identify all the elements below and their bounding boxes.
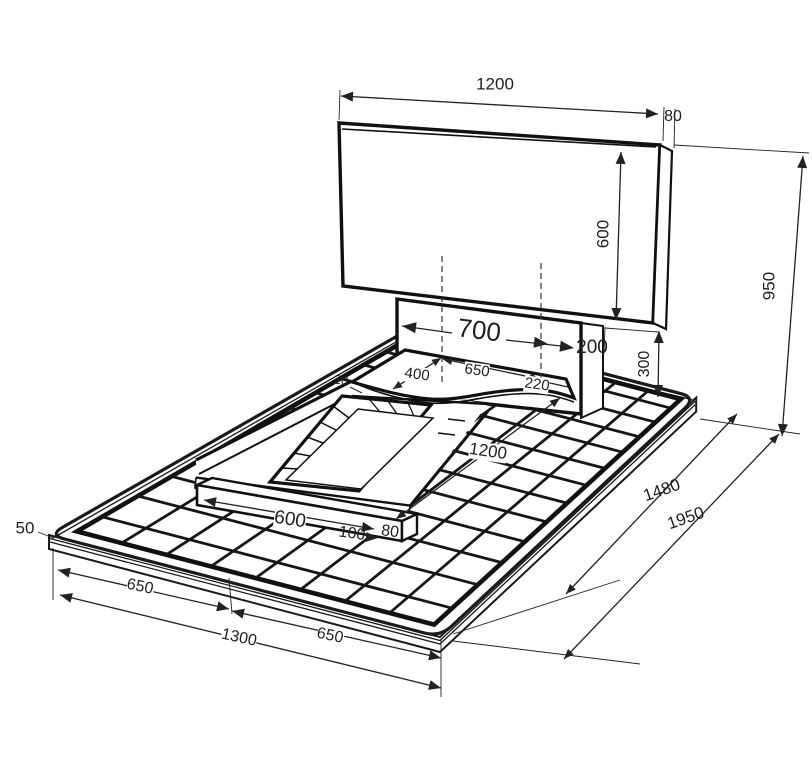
svg-text:1200: 1200 (476, 74, 514, 93)
svg-text:200: 200 (576, 337, 608, 358)
svg-text:80: 80 (380, 522, 400, 541)
svg-text:80: 80 (664, 108, 682, 125)
svg-text:20: 20 (333, 372, 349, 389)
svg-text:650: 650 (463, 360, 490, 380)
svg-text:50: 50 (16, 518, 35, 537)
svg-text:400: 400 (403, 364, 430, 384)
svg-text:950: 950 (759, 272, 778, 300)
svg-text:600: 600 (593, 220, 612, 248)
svg-text:700: 700 (456, 312, 503, 347)
svg-text:300: 300 (636, 351, 653, 378)
svg-text:220: 220 (523, 374, 550, 394)
